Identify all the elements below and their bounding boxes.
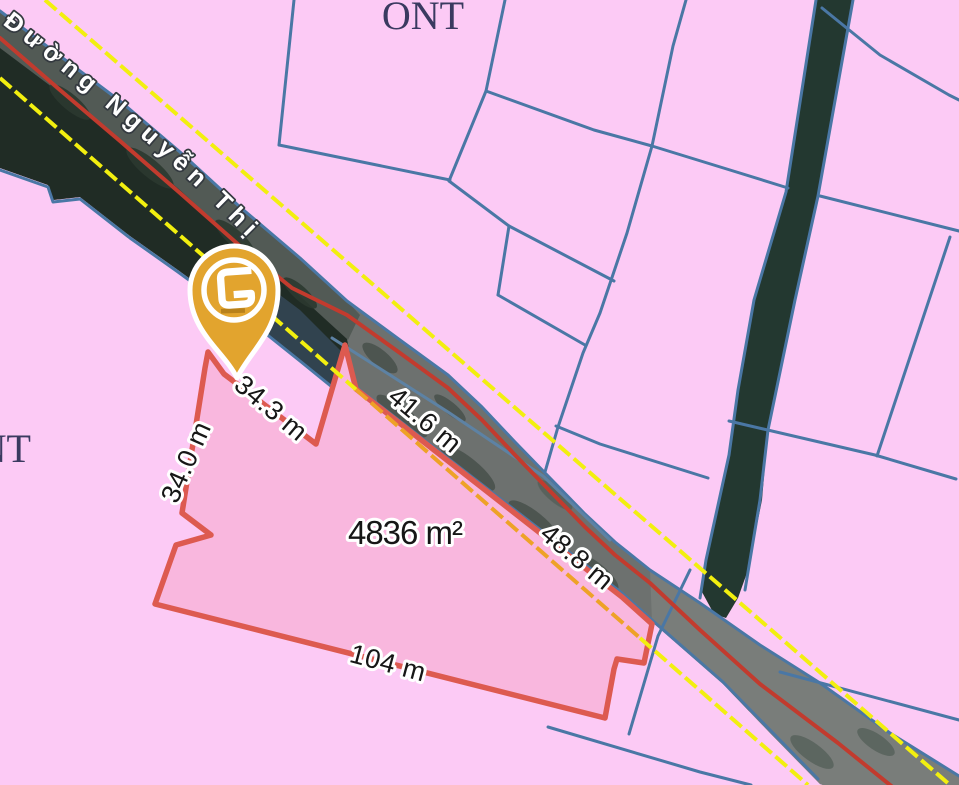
svg-text:ONT: ONT (0, 426, 31, 471)
svg-text:4836 m²: 4836 m² (348, 514, 463, 551)
svg-text:ONT: ONT (382, 0, 464, 38)
